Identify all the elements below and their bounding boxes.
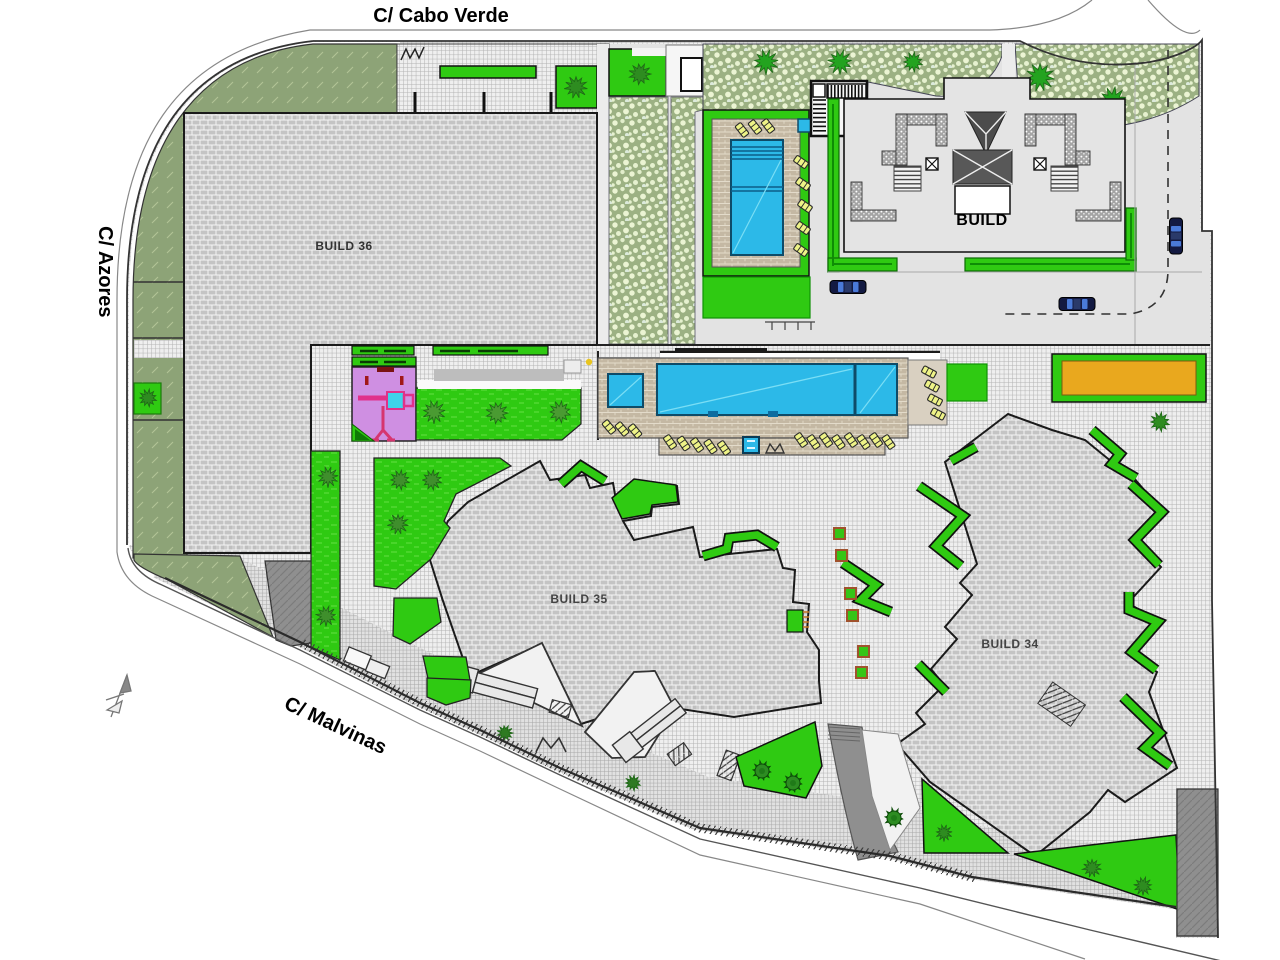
svg-text:C/ Cabo Verde: C/ Cabo Verde — [373, 5, 509, 27]
svg-text:BUILD 34: BUILD 34 — [981, 637, 1038, 651]
svg-text:BUILD 36: BUILD 36 — [315, 239, 372, 253]
svg-text:C/ Malvinas: C/ Malvinas — [281, 693, 390, 759]
svg-text:BUILD 35: BUILD 35 — [550, 592, 607, 606]
svg-text:C/ Azores: C/ Azores — [94, 226, 116, 318]
svg-text:BUILD: BUILD — [956, 212, 1007, 229]
